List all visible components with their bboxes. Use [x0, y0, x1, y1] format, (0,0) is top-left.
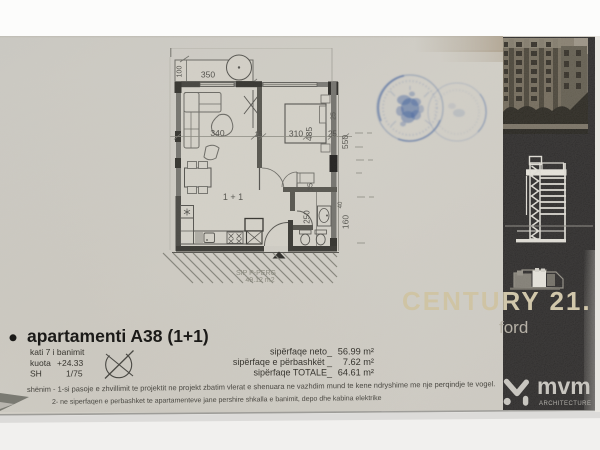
svg-text:sipërfaqe TOTALE_: sipërfaqe TOTALE_: [253, 368, 333, 378]
svg-text:sipërfaqe e përbashkët _: sipërfaqe e përbashkët _: [233, 357, 333, 367]
svg-text:apartamenti A38 (1+1): apartamenti A38 (1+1): [27, 326, 209, 346]
svg-text:+24.33: +24.33: [57, 358, 84, 368]
svg-text:SH: SH: [30, 369, 42, 379]
svg-text:7.62 m²: 7.62 m²: [343, 357, 374, 367]
svg-text:64.61 m²: 64.61 m²: [338, 368, 374, 378]
svg-text:sipërfaqe neto_: sipërfaqe neto_: [270, 347, 333, 357]
svg-text:kati 7 i banimit: kati 7 i banimit: [30, 347, 85, 357]
svg-text:56.99 m²: 56.99 m²: [338, 347, 374, 357]
svg-text:kuota: kuota: [30, 358, 51, 368]
svg-text:1/75: 1/75: [66, 369, 83, 379]
